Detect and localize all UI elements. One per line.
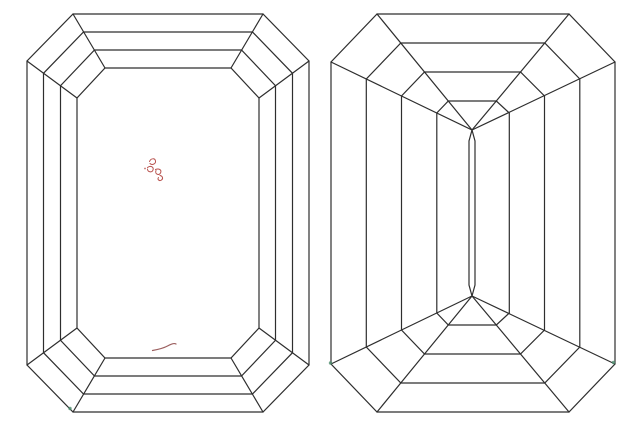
natural-dot-mark [68, 407, 71, 410]
diamond-plot-canvas [0, 0, 640, 430]
pavilion-view-diagram [329, 14, 615, 412]
pavilion-keel-line [469, 130, 475, 296]
corner-radial [231, 358, 263, 412]
corner-radial [259, 328, 309, 365]
corner-radial [231, 14, 263, 68]
pavilion-girdle-outline [331, 14, 615, 412]
corner-radial [27, 61, 77, 98]
diamond-plot-svg [0, 0, 640, 430]
corner-radial [27, 328, 77, 365]
crown-table-outline [77, 68, 259, 358]
natural-dot-mark [329, 361, 332, 364]
crown-girdle-outline [27, 14, 309, 412]
keel-edge-right [472, 130, 475, 296]
corner-radial [73, 14, 105, 68]
corner-radial [73, 358, 105, 412]
pavilion-corner-radials [331, 14, 615, 412]
crystal-cluster-scribble-mark [144, 159, 162, 181]
crown-step-outline-2 [61, 50, 276, 376]
natural-dot-mark [612, 361, 615, 364]
crown-view-diagram [27, 14, 309, 412]
corner-radial [259, 61, 309, 98]
pavilion-facet-outlines [331, 14, 615, 412]
crown-step-outline-1 [44, 32, 293, 394]
pavilion-step-outline-2 [402, 72, 545, 354]
keel-edge-left [469, 130, 472, 296]
crown-corner-radials [27, 14, 309, 412]
crown-facet-outlines [27, 14, 309, 412]
needle-curve-mark [153, 344, 177, 351]
